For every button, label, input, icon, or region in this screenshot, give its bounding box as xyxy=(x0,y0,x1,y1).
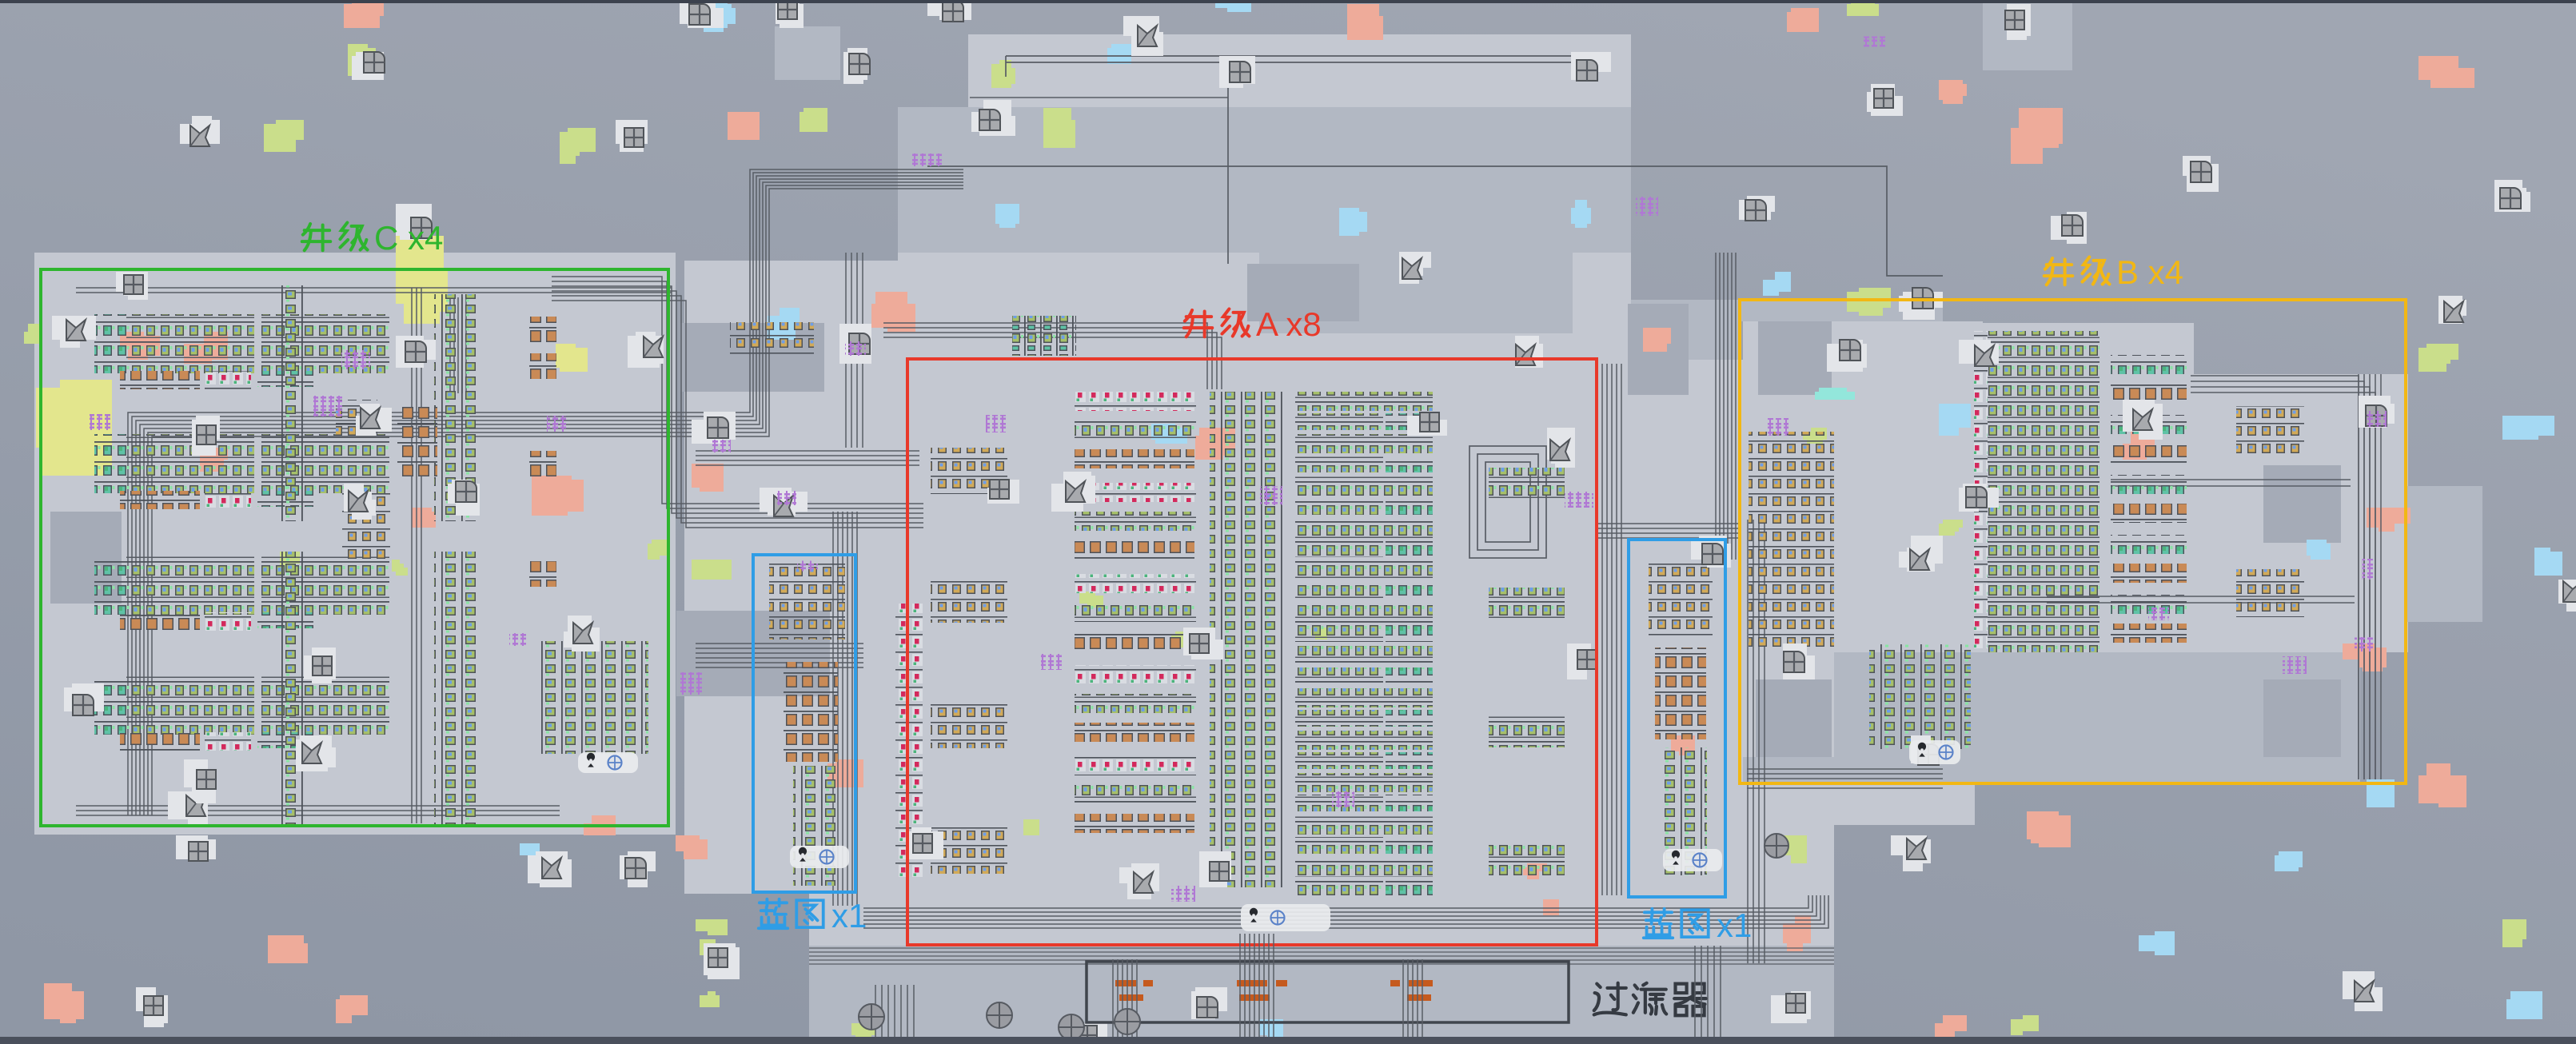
svg-text:B x4: B x4 xyxy=(2116,253,2183,291)
svg-text:A x8: A x8 xyxy=(1256,305,1322,343)
svg-text:x1: x1 xyxy=(1717,907,1752,944)
svg-text:x1: x1 xyxy=(831,897,867,934)
svg-text:C x4: C x4 xyxy=(374,219,443,257)
